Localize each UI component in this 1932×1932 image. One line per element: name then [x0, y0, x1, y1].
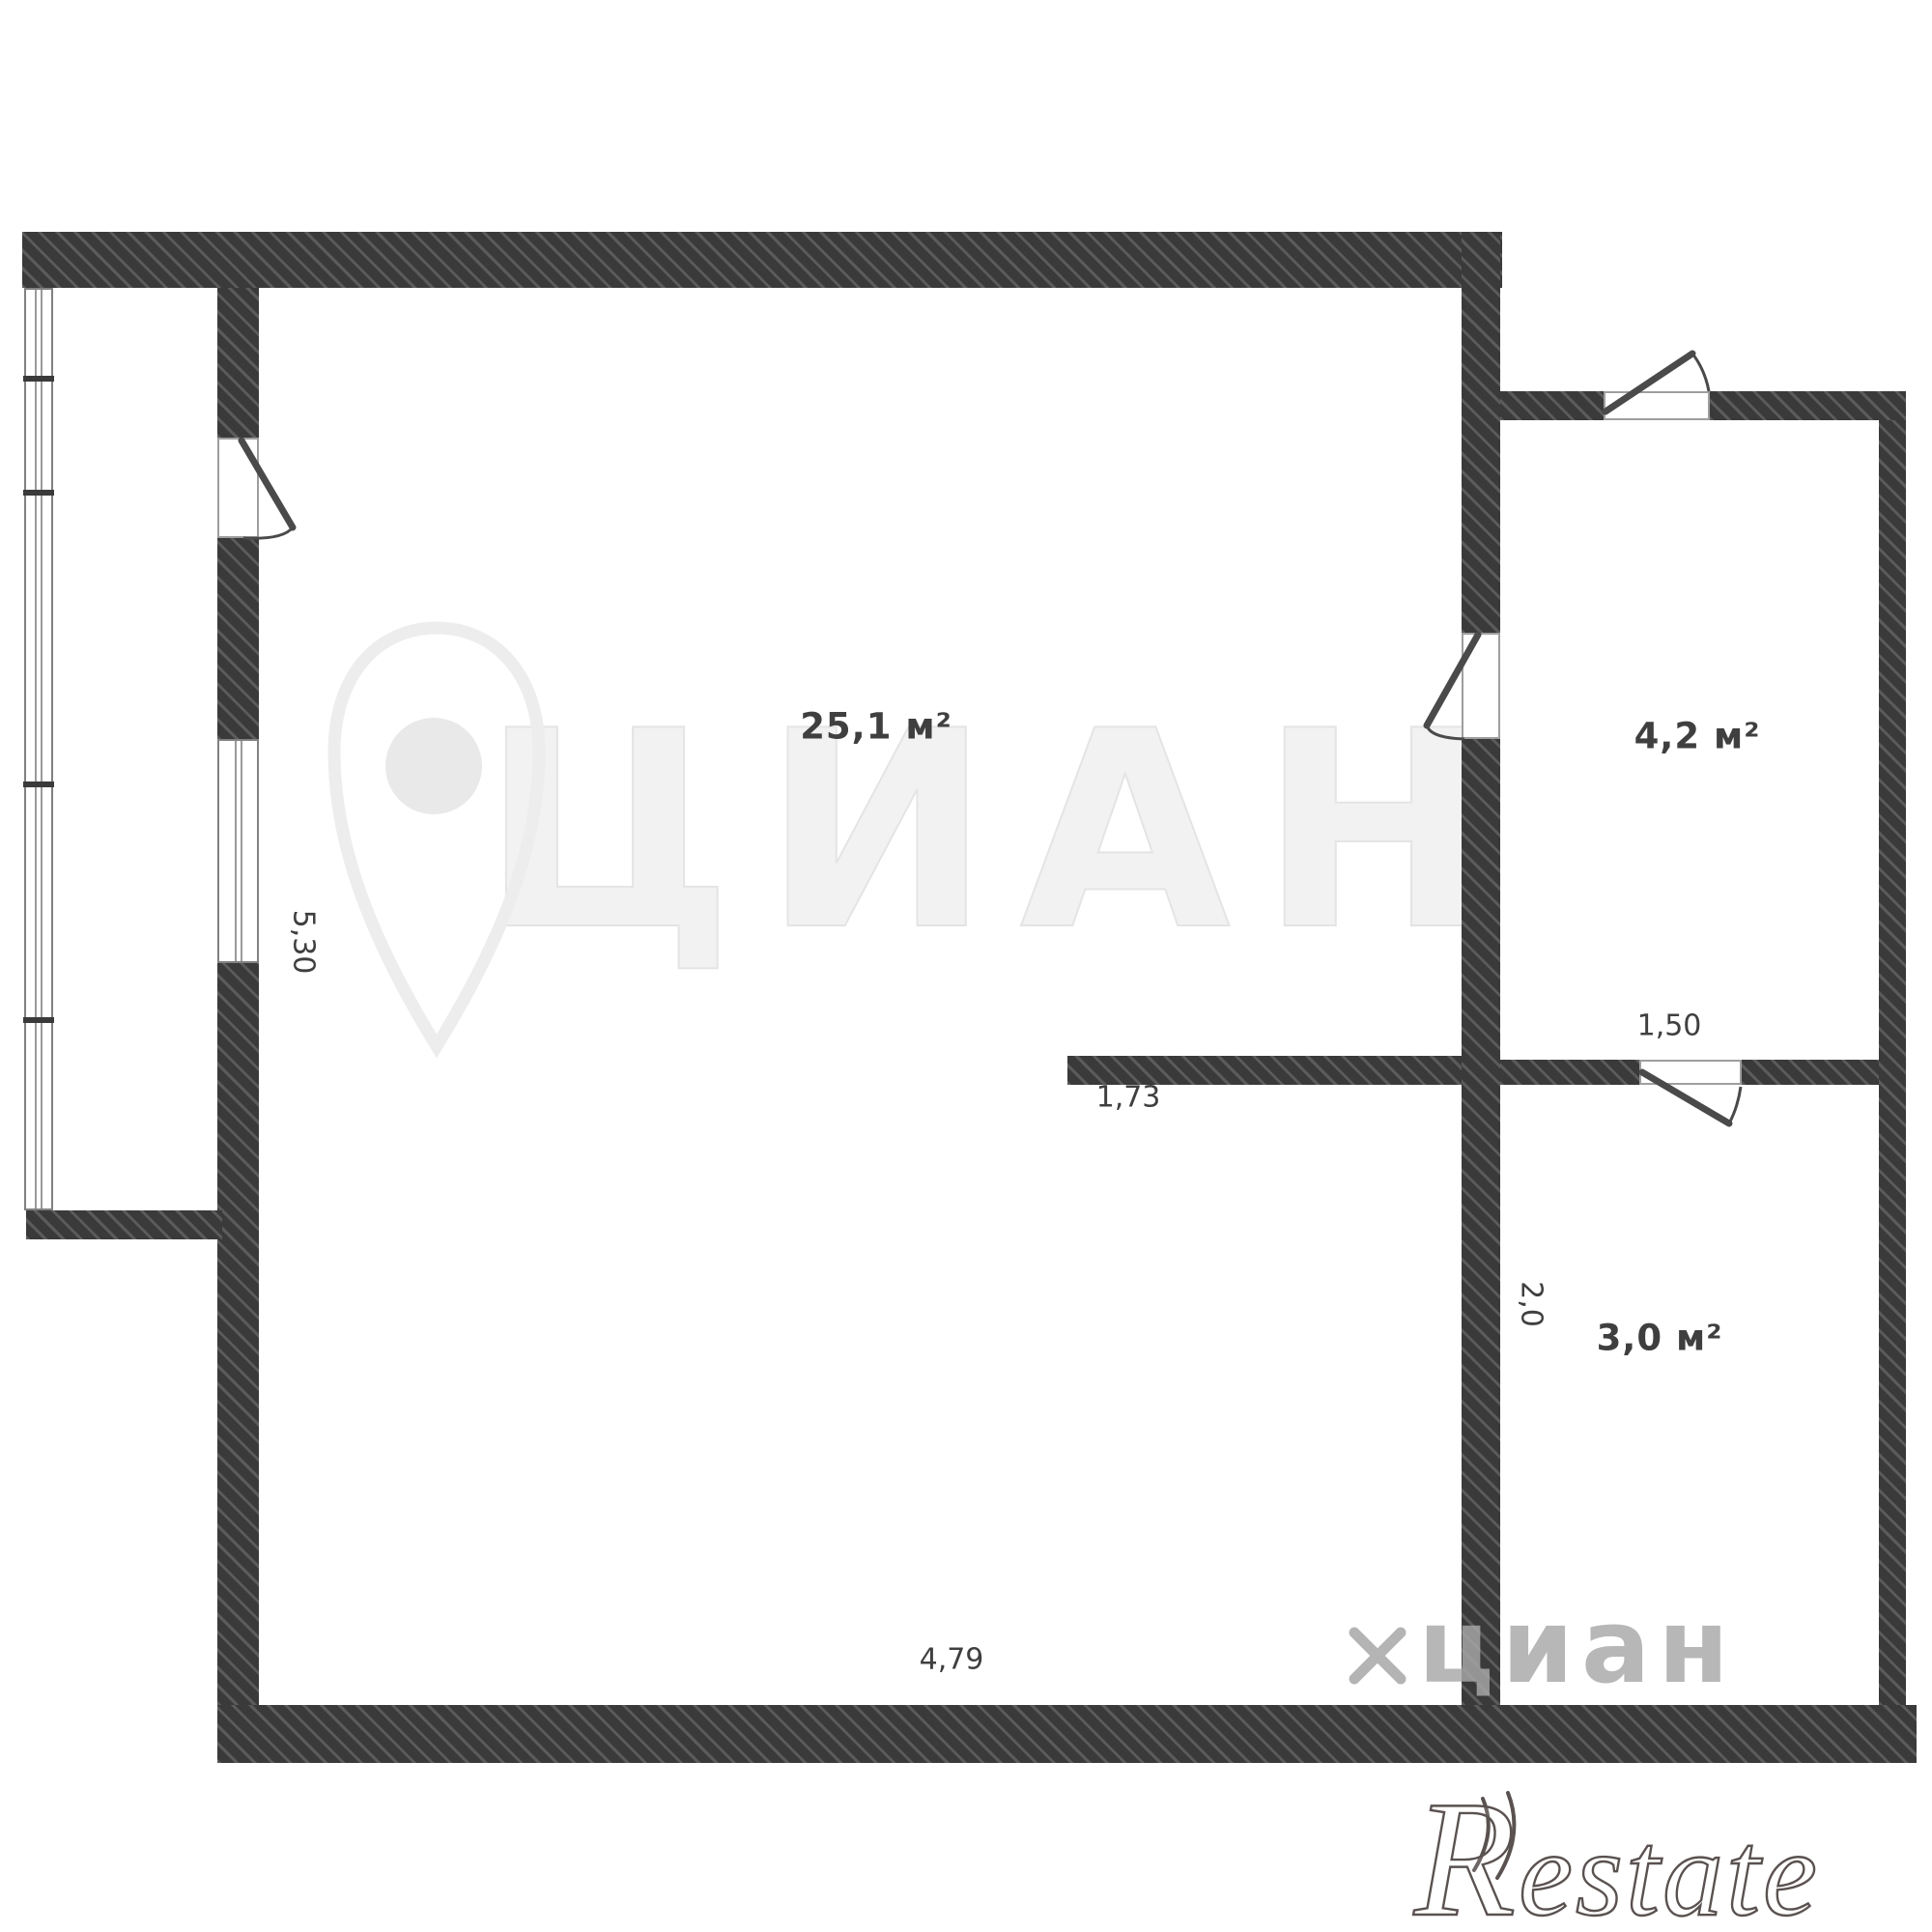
- hall-door-opening: [1462, 633, 1500, 739]
- glazing-divider-tick: [23, 781, 54, 787]
- wall-divider-left: [1500, 1060, 1639, 1085]
- glazing-divider-tick: [23, 1017, 54, 1023]
- dimension-partition-length: 1,73: [1096, 1081, 1161, 1115]
- wall-left-middle: [217, 538, 259, 739]
- wall-right-exterior: [1879, 391, 1906, 1705]
- balcony-glazing: [24, 288, 53, 1210]
- main-room-area-label: 25,1 м²: [800, 706, 952, 748]
- wall-left-lower: [217, 963, 259, 1705]
- wall-left-upper: [217, 288, 259, 438]
- dimension-main-room-width: 4,79: [920, 1643, 984, 1677]
- bathroom-door-opening: [1639, 1060, 1742, 1085]
- floor-plan-canvas: ЦИАН: [0, 0, 1932, 1932]
- entrance-door-opening: [1604, 391, 1710, 420]
- wall-hall-top-right: [1710, 391, 1906, 420]
- main-room-window-mullion: [235, 741, 242, 961]
- main-room-window: [217, 739, 259, 963]
- balcony-glazing-mullion: [35, 290, 43, 1208]
- hall-area-label: 4,2 м²: [1634, 716, 1761, 757]
- balcony-door-opening: [217, 438, 259, 538]
- cian-watermark-center: ЦИАН: [481, 696, 1517, 968]
- cian-cross-watermark-icon: [1354, 1633, 1401, 1679]
- restate-watermark: Restate: [1414, 1787, 1820, 1932]
- bathroom-area-label: 3,0 м²: [1597, 1318, 1723, 1359]
- wall-top-exterior: [22, 232, 1502, 288]
- wall-divider-right: [1742, 1060, 1879, 1085]
- dimension-balcony-side: 5,30: [287, 910, 321, 975]
- restate-watermark-capital: R: [1414, 1768, 1519, 1932]
- glazing-divider-tick: [23, 490, 54, 496]
- dimension-bathroom-side: 2,0: [1515, 1281, 1548, 1327]
- wall-bottom-exterior: [217, 1705, 1917, 1763]
- cian-watermark-bottom: циан: [1418, 1596, 1737, 1698]
- wall-center-upper: [1462, 232, 1500, 633]
- wall-center-lower: [1462, 739, 1500, 1705]
- glazing-divider-tick: [23, 376, 54, 382]
- wall-balcony-bottom: [26, 1210, 222, 1239]
- restate-watermark-rest: estate: [1519, 1807, 1820, 1932]
- wall-hall-top-left: [1500, 391, 1604, 420]
- dimension-hall-width: 1,50: [1637, 1009, 1702, 1043]
